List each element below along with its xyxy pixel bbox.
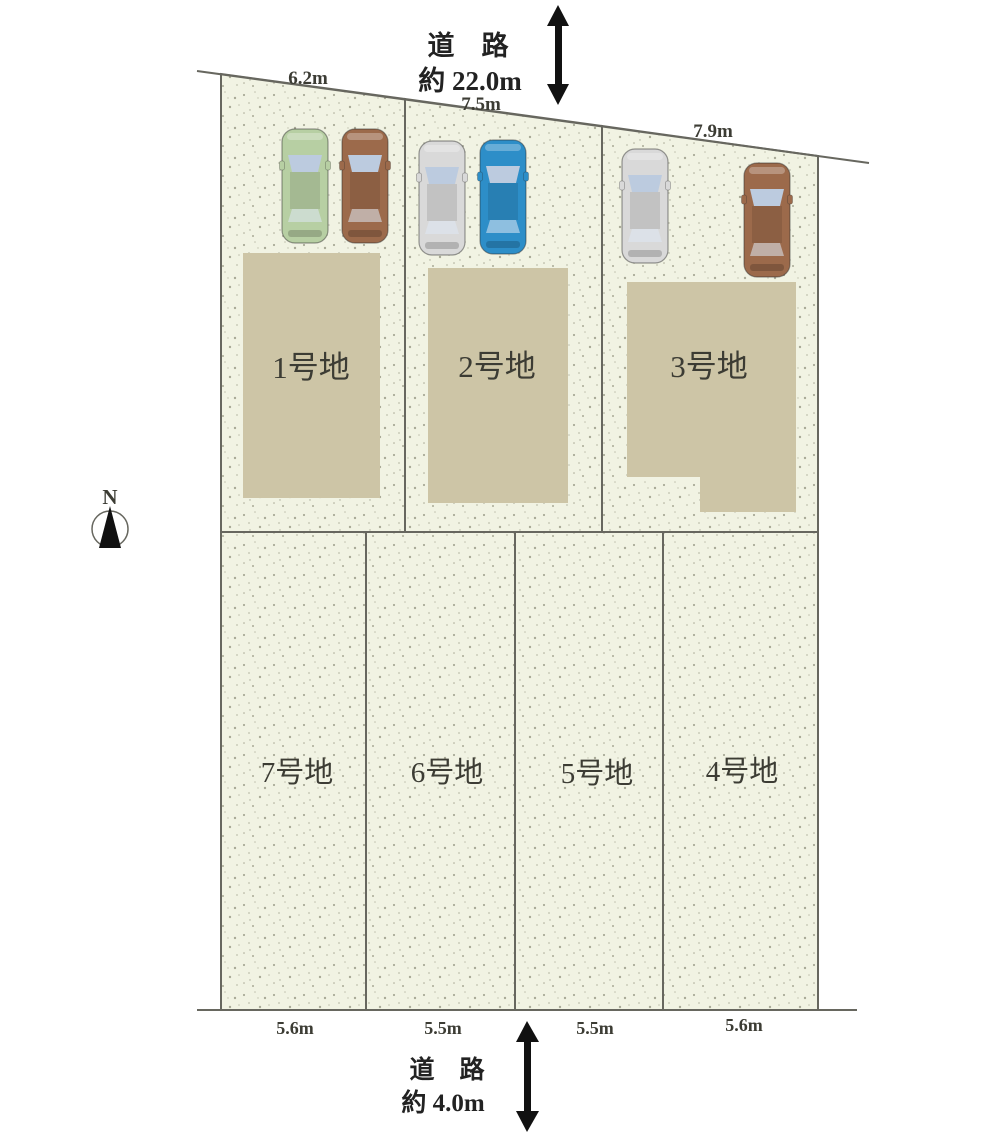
bottom-road-annotation: 道 路 約 4.0m — [401, 1021, 539, 1132]
bottom-road-width: 約 4.0m — [401, 1088, 485, 1117]
compass-north-indicator: N — [92, 485, 128, 548]
dimension-top-plot1: 6.2m — [288, 68, 328, 89]
plot-label-6: 6号地 — [411, 756, 484, 789]
car-plot2-white — [417, 141, 468, 255]
top-road-name: 道 路 — [428, 30, 510, 61]
dimension-top-plot3: 7.9m — [693, 121, 733, 142]
dimension-bottom-plot5: 5.5m — [576, 1018, 614, 1038]
car-plot1-green — [280, 129, 331, 243]
top-road-width: 約 22.0m — [418, 65, 522, 96]
compass-n-label: N — [102, 485, 117, 509]
plot-label-2: 2号地 — [458, 349, 536, 384]
plot-label-7: 7号地 — [261, 756, 334, 789]
bottom-road-name: 道 路 — [409, 1055, 485, 1084]
car-plot1-brown — [340, 129, 391, 243]
dimension-bottom-plot4: 5.6m — [725, 1015, 763, 1035]
dimension-bottom-plot6: 5.5m — [424, 1018, 462, 1038]
plot-label-3: 3号地 — [670, 349, 748, 384]
plot-layout-diagram: 1号地 2号地 3号地 7号地 6号地 5号地 4号地 6.2m 7.5m 7.… — [0, 0, 1000, 1137]
top-road-arrow — [547, 5, 569, 105]
car-plot2-blue — [478, 140, 529, 254]
dimension-bottom-plot7: 5.6m — [276, 1018, 314, 1038]
bottom-road-arrow — [516, 1021, 539, 1132]
plot-label-1: 1号地 — [272, 350, 350, 385]
building-plot-2 — [428, 268, 568, 503]
car-plot3-white — [620, 149, 671, 263]
car-plot3-brown — [742, 163, 793, 277]
plot-label-5: 5号地 — [561, 757, 634, 790]
dimension-top-plot2: 7.5m — [461, 94, 501, 115]
top-road-annotation: 道 路 約 22.0m — [418, 5, 569, 105]
plot-label-4: 4号地 — [706, 755, 779, 788]
diagram-svg: 1号地 2号地 3号地 7号地 6号地 5号地 4号地 6.2m 7.5m 7.… — [0, 0, 1000, 1137]
